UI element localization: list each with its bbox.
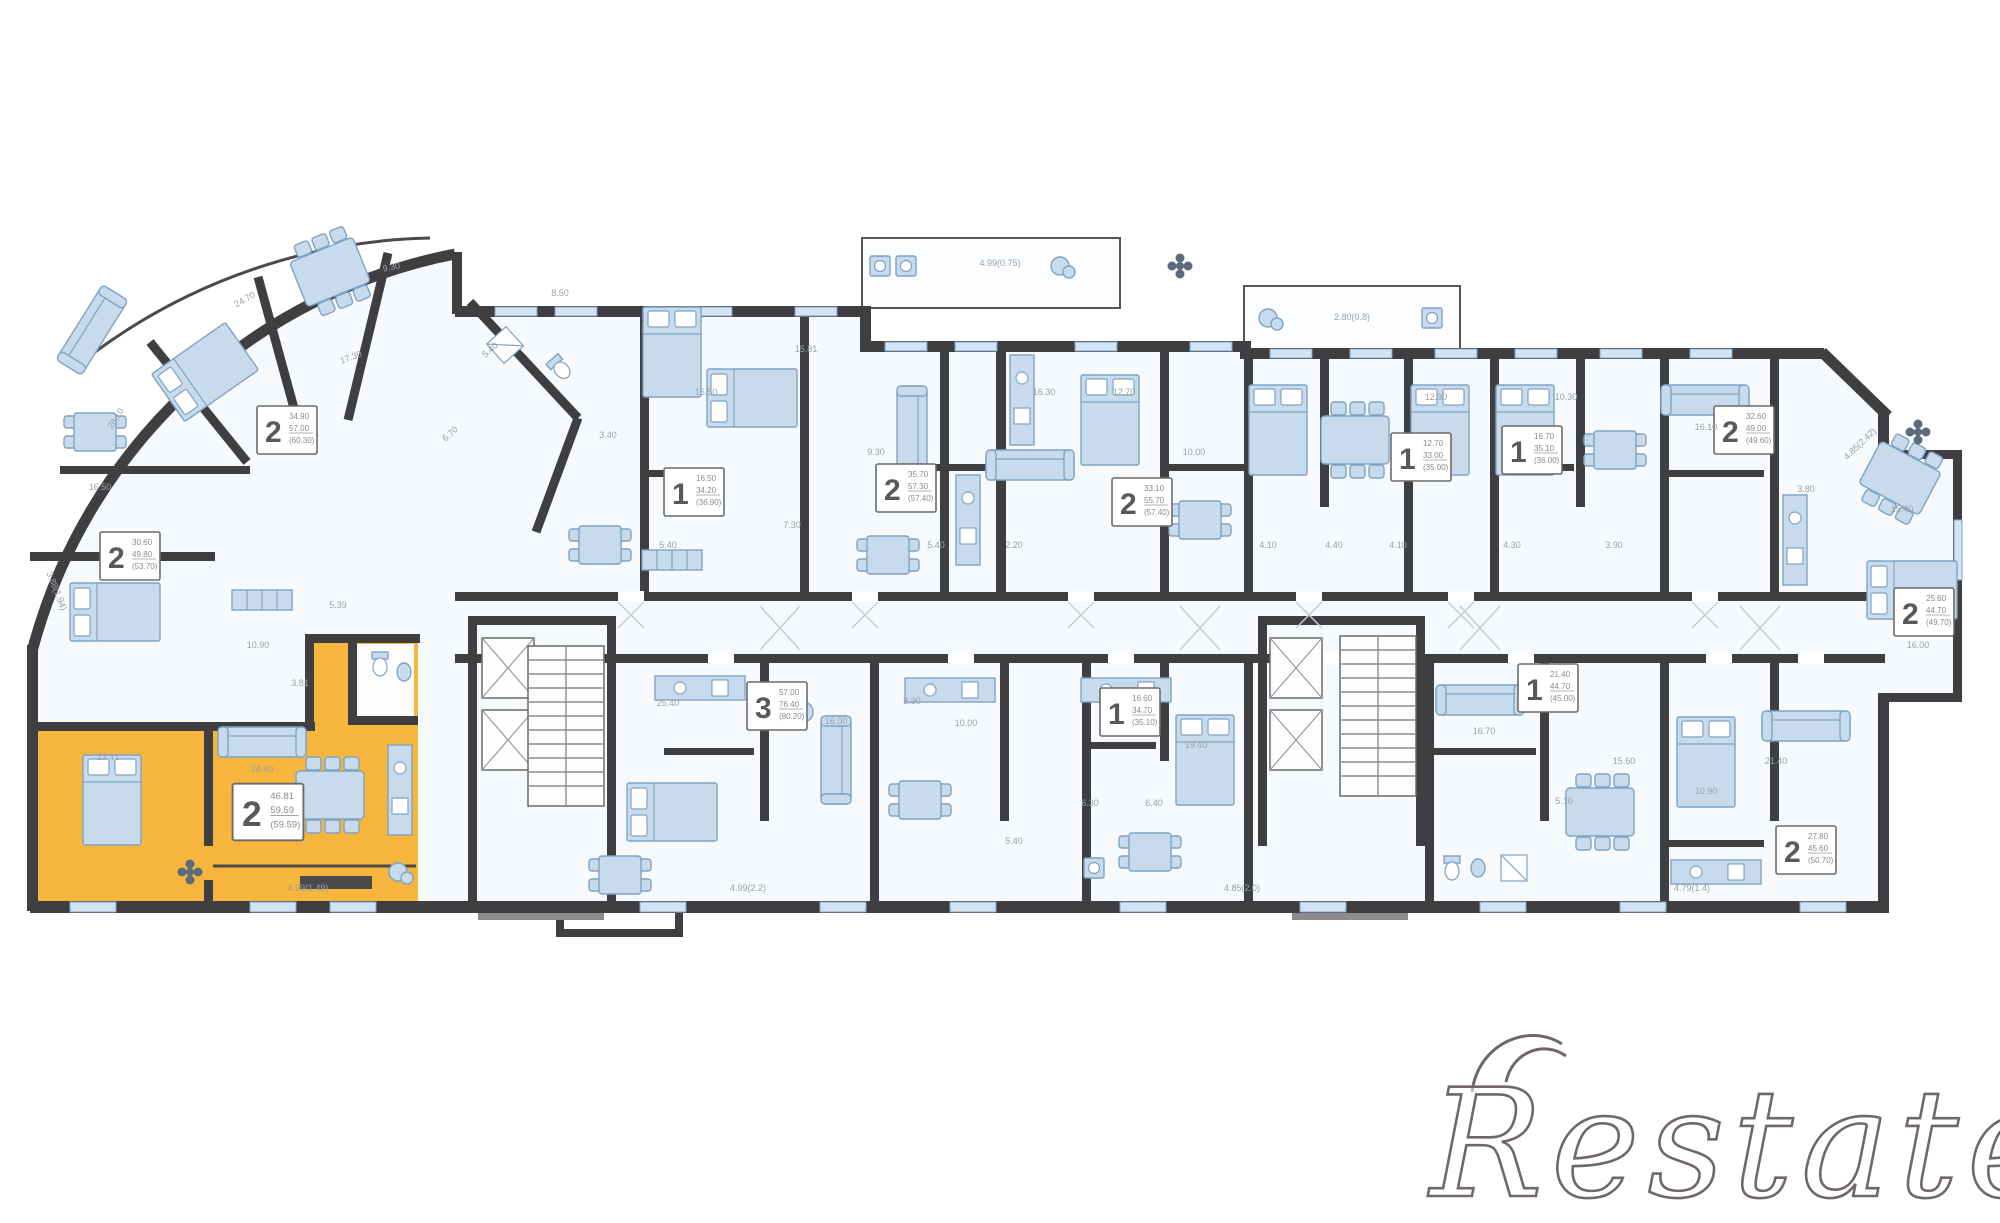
room-dimension: 16.00 [1907,640,1930,650]
room-dimension: 12.70 [1113,387,1136,397]
svg-text:34.90: 34.90 [289,412,310,421]
svg-text:3: 3 [755,692,772,725]
floor-plan-canvas: 234.9057.00(60.30)230.6049.80(53.70)116.… [0,0,2000,1223]
svg-text:35.70: 35.70 [908,470,929,479]
room-dimension: 16.70 [1473,726,1496,736]
svg-text:57.00: 57.00 [779,688,800,697]
room-dimension: 5.40 [927,540,945,550]
unit-label-10[interactable]: 246.8159.59(59.59) [233,784,304,841]
room-dimension: 16.00 [825,716,848,726]
svg-text:34.70: 34.70 [1132,706,1153,715]
room-dimension: 10.00 [955,718,978,728]
svg-text:16.60: 16.60 [1132,694,1153,703]
svg-text:49.80: 49.80 [132,550,153,559]
svg-text:2: 2 [1722,416,1739,449]
svg-text:2: 2 [1784,836,1801,869]
room-dimension: 4.30 [1503,540,1521,550]
svg-text:12.70: 12.70 [1423,439,1444,448]
room-dimension: 4.79(1.4) [1674,883,1710,893]
svg-text:44.70: 44.70 [1550,682,1571,691]
svg-text:32.60: 32.60 [1746,412,1767,421]
svg-text:(60.30): (60.30) [289,436,315,445]
unit-label-9[interactable]: 225.6044.70(49.70) [1894,588,1954,636]
svg-text:(53.70): (53.70) [132,562,158,571]
stairs-icon [528,646,604,806]
svg-text:21.40: 21.40 [1550,670,1571,679]
svg-text:2: 2 [1902,598,1919,631]
room-dimension: 16.50 [89,482,112,492]
elevator-icon [482,638,534,698]
room-dimension: 3.90 [1605,540,1623,550]
room-dimension: 2.20 [1005,540,1023,550]
svg-text:1: 1 [1510,436,1527,469]
room-dimension: 4.99(0.75) [979,258,1020,268]
svg-text:(49.70): (49.70) [1926,618,1952,627]
room-dimension: 24.40 [251,764,274,774]
room-dimension: 4.99(1.49) [287,883,328,893]
unit-label-5[interactable]: 233.1055.70(57.40) [1112,478,1172,526]
unit-label-12[interactable]: 116.6034.70(35.10) [1100,688,1160,736]
room-dimension: 8.30 [903,696,921,706]
room-dimension: 19.40 [1185,740,1208,750]
svg-text:25.60: 25.60 [1926,594,1947,603]
room-dimension: 2.80(0.8) [1334,312,1370,322]
svg-text:(57.40): (57.40) [1144,508,1170,517]
room-dimension: 4.40 [1325,540,1343,550]
svg-text:1: 1 [1108,698,1125,731]
svg-text:(50.70): (50.70) [1808,856,1834,865]
svg-text:(35.10): (35.10) [1132,718,1158,727]
svg-text:49.00: 49.00 [1746,424,1767,433]
unit-label-1[interactable]: 234.9057.00(60.30) [257,406,317,454]
watermark: Restate [1427,1035,2000,1223]
room-dimension: 5.40 [1005,836,1023,846]
unit-label-13[interactable]: 121.4044.70(45.00) [1518,664,1578,712]
room-dimension: 25.40 [657,698,680,708]
unit-label-11[interactable]: 357.0076.40(80.20) [747,682,807,730]
svg-text:45.60: 45.60 [1808,844,1829,853]
room-dimension: 3.81 [291,678,309,688]
watermark-text: Restate [1427,1058,2000,1223]
room-dimension: 10.00 [1183,447,1206,457]
svg-text:1: 1 [1399,443,1416,476]
svg-text:(80.20): (80.20) [779,712,805,721]
svg-text:16.70: 16.70 [1534,432,1555,441]
svg-text:(59.59): (59.59) [270,819,300,830]
unit-label-8[interactable]: 232.6049.00(49.60) [1714,406,1774,454]
svg-text:33.10: 33.10 [1144,484,1165,493]
svg-text:35.10: 35.10 [1534,444,1555,453]
svg-text:30.60: 30.60 [132,538,153,547]
svg-text:55.70: 55.70 [1144,496,1165,505]
svg-text:46.81: 46.81 [270,791,294,802]
svg-text:(35.00): (35.00) [1423,463,1449,472]
room-dimension: 23.41 [97,752,120,762]
svg-text:2: 2 [265,416,282,449]
entrance-porches [478,913,1408,920]
svg-text:(36.00): (36.00) [1534,456,1560,465]
unit-label-4[interactable]: 235.7057.30(57.40) [876,464,936,512]
room-dimension: 3.40 [599,430,617,440]
svg-text:2: 2 [108,542,125,575]
unit-label-3[interactable]: 116.5034.20(36.90) [664,468,724,516]
unit-label-7[interactable]: 116.7035.10(36.00) [1502,426,1562,474]
svg-text:16.50: 16.50 [696,474,717,483]
room-dimension: 9.30 [867,447,885,457]
svg-text:2: 2 [1120,488,1137,521]
svg-text:(57.40): (57.40) [908,494,934,503]
room-dimension: 4.99(2.2) [730,883,766,893]
svg-text:76.40: 76.40 [779,700,800,709]
svg-text:44.70: 44.70 [1926,606,1947,615]
room-dimension: 4.85(2.0) [1224,883,1260,893]
room-dimension: 10.90 [1695,786,1718,796]
unit-label-6[interactable]: 112.7033.00(35.00) [1391,433,1451,481]
svg-text:34.20: 34.20 [696,486,717,495]
room-dimension: 15.81 [795,344,818,354]
room-dimension: 15.40 [1891,504,1914,514]
room-dimension: 7.30 [783,520,801,530]
svg-text:(49.60): (49.60) [1746,436,1772,445]
room-dimension: 5.10 [1555,796,1573,806]
room-dimension: 3.80 [1797,484,1815,494]
room-dimension: 10.90 [247,640,270,650]
svg-text:2: 2 [884,474,901,507]
room-dimension: 5.40 [659,540,677,550]
svg-text:33.00: 33.00 [1423,451,1444,460]
room-dimension: 4.10 [1389,540,1407,550]
svg-text:(36.90): (36.90) [696,498,722,507]
svg-text:1: 1 [672,478,689,511]
room-dimension: 8.50 [551,288,569,298]
svg-text:57.30: 57.30 [908,482,929,491]
svg-text:59.59: 59.59 [270,805,294,816]
unit-label-14[interactable]: 227.8045.60(50.70) [1776,826,1836,874]
svg-text:2: 2 [242,794,262,834]
room-dimension: 4.10 [1259,540,1277,550]
svg-text:(45.00): (45.00) [1550,694,1576,703]
room-dimension: 5.39 [329,600,347,610]
room-dimension: 16.50 [695,387,718,397]
svg-text:57.00: 57.00 [289,424,310,433]
room-dimension: 21.40 [1765,756,1788,766]
unit-label-2[interactable]: 230.6049.80(53.70) [100,532,160,580]
room-dimension: 24.70 [232,289,257,309]
svg-text:27.80: 27.80 [1808,832,1829,841]
room-dimension: 16.10 [1695,422,1718,432]
room-dimension: 15.60 [1613,756,1636,766]
floor-plan: 234.9057.00(60.30)230.6049.80(53.70)116.… [0,0,2000,1223]
room-dimension: 10.30 [1555,392,1578,402]
svg-text:1: 1 [1526,674,1543,707]
room-dimension: 16.30 [1033,387,1056,397]
room-dimension: 6.40 [1145,798,1163,808]
room-dimension: 6.30 [1081,798,1099,808]
room-dimension: 12.30 [1425,392,1448,402]
